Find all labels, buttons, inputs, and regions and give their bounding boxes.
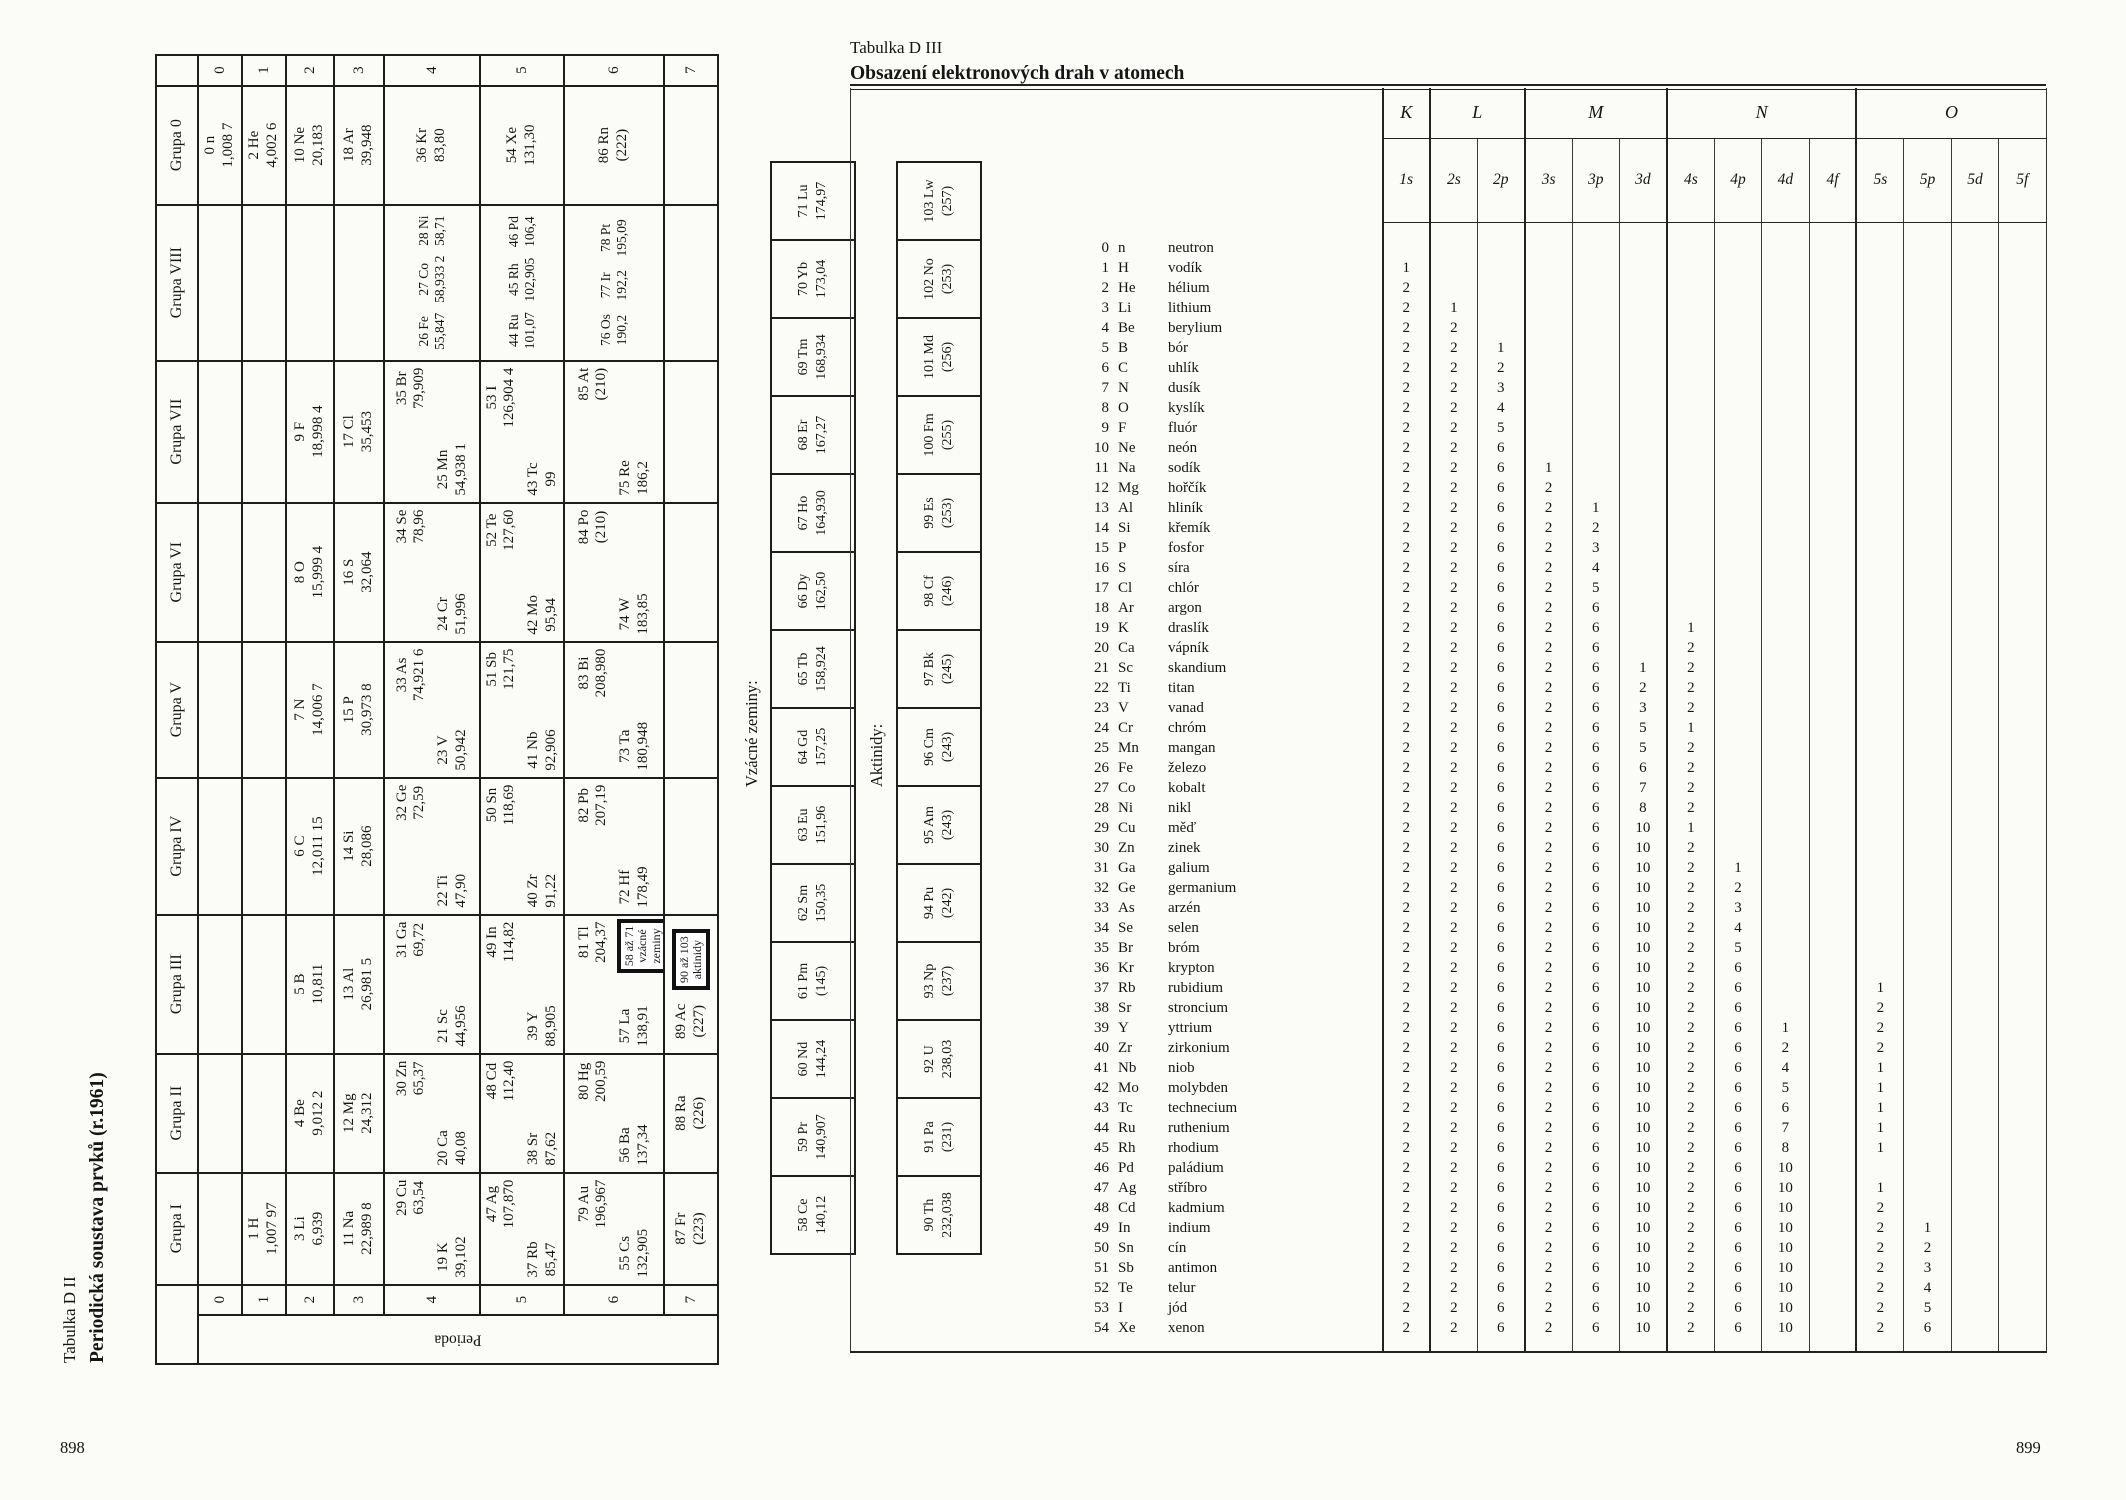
- electron-count-cell: [1809, 1198, 1856, 1218]
- element-name-cell: 32Gegermanium: [851, 878, 1383, 898]
- element-number-symbol: 56 Ba: [617, 1124, 635, 1165]
- element-symbol: Ca: [1109, 640, 1168, 657]
- element-entry: 48 Cd112,40: [484, 1061, 519, 1102]
- element-row: 9Ffluór225: [851, 418, 2047, 438]
- cell-content: 8 O15,999 4: [292, 504, 327, 641]
- electron-count-cell: [1809, 298, 1856, 318]
- element-row: 15Pfosfor22623: [851, 538, 2047, 558]
- electron-count-cell: 7: [1619, 778, 1666, 798]
- element-number: 26: [1063, 760, 1109, 777]
- electron-count-cell: [1904, 878, 1951, 898]
- element-mass: 92,906: [543, 729, 561, 770]
- electron-count-cell: 2: [1525, 598, 1572, 618]
- right-page-title: Tabulka D III: [850, 38, 942, 58]
- electron-count-cell: [1809, 898, 1856, 918]
- element-entry: 54 Xe131,30: [504, 125, 539, 166]
- element-number: 39: [1063, 1020, 1109, 1037]
- electron-count-cell: 2: [1383, 1118, 1430, 1138]
- electron-count-cell: 6: [1714, 1278, 1761, 1298]
- element-name-cell: 23Vvanad: [851, 698, 1383, 718]
- electron-count-cell: 6: [1572, 1258, 1619, 1278]
- electron-count-cell: 2: [1667, 1038, 1714, 1058]
- electron-count-cell: [1951, 998, 1998, 1018]
- electron-count-cell: 2: [1383, 798, 1430, 818]
- element-mass: 40,08: [453, 1130, 471, 1165]
- electron-count-cell: [1856, 1158, 1903, 1178]
- element-number: 36: [1063, 960, 1109, 977]
- electron-count-cell: 2: [1619, 678, 1666, 698]
- electron-count-cell: 10: [1619, 1298, 1666, 1318]
- subshell-header: 4s: [1667, 138, 1714, 222]
- electron-count-cell: 2: [1667, 1058, 1714, 1078]
- element-name: niob: [1168, 1060, 1195, 1077]
- subshell-header: 2s: [1430, 138, 1477, 222]
- electron-count-cell: 2: [1525, 1318, 1572, 1338]
- element-cell: 42 Mo95,9452 Te127,60: [480, 503, 564, 642]
- electron-count-cell: 2: [1383, 698, 1430, 718]
- element-number: 4: [1063, 320, 1109, 337]
- element-symbol: Cu: [1109, 820, 1168, 837]
- element-number-symbol: 53 I: [484, 368, 502, 428]
- element-number-symbol: 9 F: [292, 405, 310, 458]
- element-number-symbol: 28 Ni: [416, 215, 432, 245]
- element-row: 12Mghořčík2262: [851, 478, 2047, 498]
- subshell-header: 4f: [1809, 138, 1856, 222]
- element-row: 49Inindium2262610261021: [851, 1218, 2047, 1238]
- electron-count-cell: 6: [1572, 838, 1619, 858]
- electron-count-cell: 6: [1572, 858, 1619, 878]
- element-mass: 204,37: [593, 922, 611, 963]
- rare-earth-cell: 62 Sm150,35: [770, 863, 856, 943]
- electron-count-cell: [1572, 478, 1619, 498]
- electron-count-cell: 2: [1383, 1058, 1430, 1078]
- element-number-symbol: 79 Au: [576, 1180, 594, 1229]
- electron-count-cell: 6: [1714, 1158, 1761, 1178]
- element-number-symbol: 36 Kr: [414, 128, 432, 163]
- element-cell: [198, 915, 242, 1054]
- electron-count-cell: 5: [1619, 738, 1666, 758]
- element-mass: 127,60: [501, 510, 519, 551]
- element-cell: [664, 642, 718, 778]
- element-cell: 12 Mg24,312: [334, 1054, 384, 1173]
- element-cell: 57 La138,9158 až 71vzácnézeminy81 Tl204,…: [564, 915, 664, 1054]
- electron-count-cell: [1809, 738, 1856, 758]
- electron-count-cell: [1904, 278, 1951, 298]
- electron-count-cell: [1951, 778, 1998, 798]
- element-mass: 47,90: [453, 874, 471, 908]
- element-number-symbol: 55 Cs: [617, 1229, 635, 1278]
- electron-count-cell: 2: [1383, 1178, 1430, 1198]
- element-row: 6Cuhlík222: [851, 358, 2047, 378]
- electron-count-cell: [1999, 458, 2046, 478]
- electron-count-cell: [1762, 718, 1809, 738]
- element-number: 20: [1063, 640, 1109, 657]
- element-symbol: Fe: [1109, 760, 1168, 777]
- electron-count-cell: [1904, 778, 1951, 798]
- electron-count-cell: [1619, 458, 1666, 478]
- element-symbol: He: [1109, 280, 1168, 297]
- electron-count-cell: [1714, 778, 1761, 798]
- electron-count-cell: [1904, 698, 1951, 718]
- element-name: hélium: [1168, 280, 1210, 297]
- electron-count-cell: 2: [1383, 1318, 1430, 1338]
- element-cell: 3 Li6,939: [286, 1173, 334, 1285]
- electron-count-cell: [1762, 418, 1809, 438]
- electron-count-cell: 2: [1383, 1258, 1430, 1278]
- electron-count-cell: [1904, 638, 1951, 658]
- element-name: titan: [1168, 680, 1195, 697]
- electron-count-cell: [1951, 338, 1998, 358]
- electron-count-cell: 3: [1904, 1258, 1951, 1278]
- element-cell: 86 Rn(222): [564, 86, 664, 205]
- electron-count-cell: 10: [1762, 1318, 1809, 1338]
- element-mass: 162,50: [813, 572, 831, 611]
- element-number-symbol: 15 P: [341, 683, 359, 736]
- element-entry: 81 Tl204,37: [576, 922, 611, 963]
- element-entry: 10 Ne20,183: [292, 125, 327, 166]
- element-name-cell: 4Beberylium: [851, 318, 1383, 338]
- electron-count-cell: [1667, 498, 1714, 518]
- element-symbol: V: [1109, 700, 1168, 717]
- element-mass: 65,37: [411, 1061, 429, 1096]
- element-cell: 22 Ti47,9032 Ge72,59: [384, 778, 480, 915]
- electron-count-cell: [1951, 1138, 1998, 1158]
- element-name: nikl: [1168, 800, 1191, 817]
- electron-count-cell: [1999, 1298, 2046, 1318]
- element-name-cell: 39Yyttrium: [851, 1018, 1383, 1038]
- element-cell: 20 Ca40,0830 Zn65,37: [384, 1054, 480, 1173]
- electron-count-cell: 2: [1383, 638, 1430, 658]
- electron-count-cell: 6: [1572, 898, 1619, 918]
- electron-count-cell: 6: [1477, 1018, 1524, 1038]
- electron-count-cell: 2: [1667, 738, 1714, 758]
- element-number-symbol: 12 Mg: [341, 1093, 359, 1134]
- electron-count-cell: [1619, 518, 1666, 538]
- rare-earth-cell: 70 Yb173,04: [770, 239, 856, 319]
- element-cell: 75 Re186,285 At(210): [564, 361, 664, 503]
- electron-count-cell: 6: [1572, 658, 1619, 678]
- element-name-cell: 13Alhliník: [851, 498, 1383, 518]
- electron-count-cell: 2: [1525, 1098, 1572, 1118]
- electron-count-cell: [1904, 658, 1951, 678]
- electron-count-cell: 6: [1477, 1078, 1524, 1098]
- electron-count-cell: 10: [1619, 1058, 1666, 1078]
- cell-content: 87 Fr(223): [673, 1174, 708, 1284]
- electron-count-cell: [1714, 318, 1761, 338]
- electron-count-cell: [1714, 598, 1761, 618]
- element-entry: 33 As74,921 6: [394, 649, 429, 702]
- electron-count-cell: 6: [1572, 1138, 1619, 1158]
- electron-count-cell: 6: [1477, 1138, 1524, 1158]
- electron-count-cell: 2: [1572, 518, 1619, 538]
- electron-count-cell: [1809, 278, 1856, 298]
- electron-count-cell: 10: [1619, 1018, 1666, 1038]
- electron-count-cell: [1809, 918, 1856, 938]
- electron-count-cell: [1762, 658, 1809, 678]
- cell-content: 88 Ra(226): [673, 1055, 708, 1172]
- element-mass: 99: [543, 462, 561, 495]
- electron-count-cell: [1856, 698, 1903, 718]
- electron-count-cell: [1999, 618, 2046, 638]
- element-mass: 180,948: [635, 722, 653, 771]
- element-name-cell: 20Cavápník: [851, 638, 1383, 658]
- element-entry: 16 S32,064: [341, 552, 376, 593]
- element-row: 51Sbantimon2262610261023: [851, 1258, 2047, 1278]
- element-name: vanad: [1168, 700, 1204, 717]
- electron-count-cell: [1762, 838, 1809, 858]
- element-mass: 26,981 5: [359, 958, 377, 1011]
- electron-count-cell: [1762, 278, 1809, 298]
- right-page-subtitle: Obsazení elektronových drah v atomech: [850, 63, 1184, 85]
- electron-count-cell: [1714, 338, 1761, 358]
- electron-count-cell: [1572, 298, 1619, 318]
- electron-count-cell: 6: [1477, 918, 1524, 938]
- element-cell: 17 Cl35,453: [334, 361, 384, 503]
- element-name-cell: 26Feželezo: [851, 758, 1383, 778]
- electron-count-cell: [1809, 398, 1856, 418]
- electron-count-cell: 1: [1856, 1098, 1903, 1118]
- element-entry: 78 Pt195,09: [598, 219, 630, 256]
- element-cell: [198, 503, 242, 642]
- element-number-symbol: 50 Sn: [484, 785, 502, 826]
- period-number-cell: 1: [242, 55, 286, 86]
- electron-count-cell: [1572, 278, 1619, 298]
- cell-content: 89 Ac(227)90 až 103aktinidy: [672, 916, 711, 1053]
- name-column-header: [851, 88, 1383, 222]
- electron-count-cell: 10: [1619, 978, 1666, 998]
- element-cell: [242, 361, 286, 503]
- electron-count-cell: 6: [1572, 758, 1619, 778]
- element-mass: 207,19: [593, 785, 611, 826]
- electron-count-cell: 2: [1667, 998, 1714, 1018]
- electron-count-cell: [1904, 718, 1951, 738]
- electron-count-cell: 2: [1383, 858, 1430, 878]
- element-cell: 21 Sc44,95631 Ga69,72: [384, 915, 480, 1054]
- electron-count-cell: 1: [1714, 858, 1761, 878]
- electron-count-cell: [1619, 638, 1666, 658]
- element-cell: 36 Kr83,80: [384, 86, 480, 205]
- element-number: 16: [1063, 560, 1109, 577]
- electron-count-cell: [1999, 778, 2046, 798]
- range-note-line: aktinidy: [691, 936, 704, 983]
- element-symbol: Sb: [1109, 1260, 1168, 1277]
- electron-count-cell: [1762, 818, 1809, 838]
- electron-count-cell: [1951, 618, 1998, 638]
- electron-count-cell: [1856, 518, 1903, 538]
- electron-count-cell: 10: [1619, 1098, 1666, 1118]
- electron-count-cell: 2: [1667, 1238, 1714, 1258]
- electron-count-cell: 2: [1430, 338, 1477, 358]
- cell-content: 12 Mg24,312: [341, 1055, 376, 1172]
- electron-count-cell: 6: [1714, 1098, 1761, 1118]
- element-name-cell: 29Cuměď: [851, 818, 1383, 838]
- electron-count-cell: 2: [1430, 1198, 1477, 1218]
- electron-count-cell: [1619, 558, 1666, 578]
- element-number-symbol: 78 Pt: [598, 219, 614, 256]
- electron-count-cell: [1477, 298, 1524, 318]
- element-mass: 208,980: [593, 649, 611, 698]
- element-number-symbol: 5 B: [292, 964, 310, 1005]
- electron-count-cell: 2: [1856, 1278, 1903, 1298]
- electron-count-cell: 2: [1667, 798, 1714, 818]
- element-mass: 126,904 4: [501, 368, 519, 428]
- electron-count-cell: [1667, 478, 1714, 498]
- electron-count-cell: 2: [1383, 838, 1430, 858]
- element-entry: 85 At(210): [576, 368, 611, 401]
- element-entry: 32 Ge72,59: [394, 785, 429, 821]
- electron-count-cell: 10: [1619, 1278, 1666, 1298]
- electron-count-cell: [1714, 378, 1761, 398]
- element-mass: 196,967: [593, 1180, 611, 1229]
- element-number-symbol: 2 He: [246, 123, 264, 168]
- element-mass: 88,905: [543, 1005, 561, 1046]
- electron-count-cell: 2: [1383, 978, 1430, 998]
- electron-count-cell: [1951, 378, 1998, 398]
- cell-content: 7 N14,006 7: [292, 643, 327, 777]
- element-mass: 10,811: [310, 964, 328, 1005]
- electron-count-cell: 2: [1430, 738, 1477, 758]
- electron-count-cell: 2: [1525, 818, 1572, 838]
- electron-count-cell: [1714, 418, 1761, 438]
- electron-count-cell: 2: [1667, 1018, 1714, 1038]
- electron-count-cell: 6: [1572, 878, 1619, 898]
- electron-count-cell: 2: [1430, 978, 1477, 998]
- element-symbol: H: [1109, 260, 1168, 277]
- electron-count-cell: [1856, 498, 1903, 518]
- element-name: bróm: [1168, 940, 1200, 957]
- element-symbol: Se: [1109, 920, 1168, 937]
- electron-count-cell: [1809, 998, 1856, 1018]
- electron-count-cell: 6: [1762, 1098, 1809, 1118]
- electron-count-cell: [1951, 1078, 1998, 1098]
- electron-count-cell: [1856, 418, 1903, 438]
- group-header-cell: Grupa I: [156, 1173, 198, 1285]
- element-number-symbol: 72 Hf: [617, 866, 635, 907]
- element-cell: 56 Ba137,3480 Hg200,59: [564, 1054, 664, 1173]
- electron-count-cell: 2: [1383, 398, 1430, 418]
- element-row: 11Nasodík2261: [851, 458, 2047, 478]
- electron-count-cell: 6: [1477, 1118, 1524, 1138]
- electron-count-cell: [1951, 238, 1998, 258]
- element-row: 39Yyttrium22626102612: [851, 1018, 2047, 1038]
- electron-count-cell: 6: [1477, 518, 1524, 538]
- electron-count-cell: [1762, 638, 1809, 658]
- element-cell: 15 P30,973 8: [334, 642, 384, 778]
- element-number: 22: [1063, 680, 1109, 697]
- electron-count-cell: [1809, 1298, 1856, 1318]
- electron-count-cell: [1856, 558, 1903, 578]
- electron-count-cell: [1714, 478, 1761, 498]
- element-number: 2: [1063, 280, 1109, 297]
- electron-count-cell: 6: [1477, 1318, 1524, 1338]
- element-number-symbol: 8 O: [292, 546, 310, 599]
- electron-count-cell: 2: [1525, 478, 1572, 498]
- electron-count-cell: 1: [1383, 258, 1430, 278]
- electron-count-cell: 6: [1572, 1018, 1619, 1038]
- element-entry: 37 Rb85,47: [525, 1241, 560, 1277]
- electron-count-cell: 2: [1383, 518, 1430, 538]
- electron-count-cell: 6: [1572, 1078, 1619, 1098]
- element-entry: 25 Mn54,938 1: [435, 443, 470, 496]
- element-entry: 88 Ra(226): [673, 1095, 708, 1130]
- electron-count-cell: 2: [1525, 938, 1572, 958]
- group-header-cell: Grupa 0: [156, 86, 198, 205]
- electron-count-cell: 6: [1477, 638, 1524, 658]
- element-row: 35Brbróm226261025: [851, 938, 2047, 958]
- element-name: molybden: [1168, 1080, 1228, 1097]
- electron-count-cell: [1951, 718, 1998, 738]
- element-row: 47Agstříbro226261026101: [851, 1178, 2047, 1198]
- element-number-symbol: 30 Zn: [394, 1061, 412, 1096]
- electron-count-cell: 2: [1383, 958, 1430, 978]
- electron-count-cell: [1999, 498, 2046, 518]
- electron-count-cell: [1999, 438, 2046, 458]
- element-number-symbol: 59 Pr: [795, 1122, 813, 1152]
- electron-count-cell: 2: [1525, 858, 1572, 878]
- electron-count-cell: 6: [1477, 578, 1524, 598]
- element-symbol: Pd: [1109, 1160, 1168, 1177]
- electron-count-cell: [1714, 658, 1761, 678]
- period-row: Perioda00 n1,008 70: [198, 55, 242, 1364]
- element-mass: (227): [691, 1004, 709, 1039]
- electron-count-cell: [1619, 618, 1666, 638]
- element-symbol: Ne: [1109, 440, 1168, 457]
- electron-count-cell: [1999, 1078, 2046, 1098]
- electron-count-cell: [1667, 438, 1714, 458]
- element-row: 40Zrzirkonium22626102622: [851, 1038, 2047, 1058]
- electron-count-cell: [1809, 678, 1856, 698]
- electron-count-cell: [1951, 818, 1998, 838]
- electron-count-cell: 1: [1667, 618, 1714, 638]
- page-number-right: 899: [2016, 1438, 2041, 1458]
- electron-count-cell: [1999, 738, 2046, 758]
- electron-count-cell: [1619, 578, 1666, 598]
- element-mass: 101,07: [522, 312, 538, 349]
- electron-count-cell: 6: [1714, 1318, 1761, 1338]
- element-name: chróm: [1168, 720, 1206, 737]
- element-symbol: Br: [1109, 940, 1168, 957]
- electron-count-cell: [1999, 398, 2046, 418]
- period-row: 311 Na22,989 812 Mg24,31213 Al26,981 514…: [334, 55, 384, 1364]
- electron-count-cell: 1: [1856, 1138, 1903, 1158]
- electron-count-cell: [1951, 1158, 1998, 1178]
- electron-count-cell: [1856, 598, 1903, 618]
- element-entry: 89 Ac(227): [673, 1004, 708, 1039]
- electron-count-cell: [1809, 238, 1856, 258]
- electron-count-cell: [1951, 958, 1998, 978]
- electron-count-cell: [1951, 738, 1998, 758]
- element-symbol: Ar: [1109, 600, 1168, 617]
- element-entry: 24 Cr51,996: [435, 593, 470, 634]
- element-number-symbol: 60 Nd: [795, 1042, 813, 1077]
- electron-count-cell: 2: [1383, 898, 1430, 918]
- element-name: germanium: [1168, 880, 1236, 897]
- electron-count-cell: [1951, 978, 1998, 998]
- electron-count-cell: 2: [1525, 538, 1572, 558]
- electron-count-cell: 6: [1572, 1278, 1619, 1298]
- element-entry: 15 P30,973 8: [341, 683, 376, 736]
- element-entry: 51 Sb121,75: [484, 649, 519, 690]
- element-name: kobalt: [1168, 780, 1206, 797]
- cell-content: 11 Na22,989 8: [341, 1174, 376, 1284]
- element-number: 49: [1063, 1220, 1109, 1237]
- element-symbol: Nb: [1109, 1060, 1168, 1077]
- electron-count-cell: [1809, 478, 1856, 498]
- electron-count-cell: 6: [1714, 1018, 1761, 1038]
- element-cell: 10 Ne20,183: [286, 86, 334, 205]
- subshell-header: 4d: [1762, 138, 1809, 222]
- element-name: fluór: [1168, 420, 1197, 437]
